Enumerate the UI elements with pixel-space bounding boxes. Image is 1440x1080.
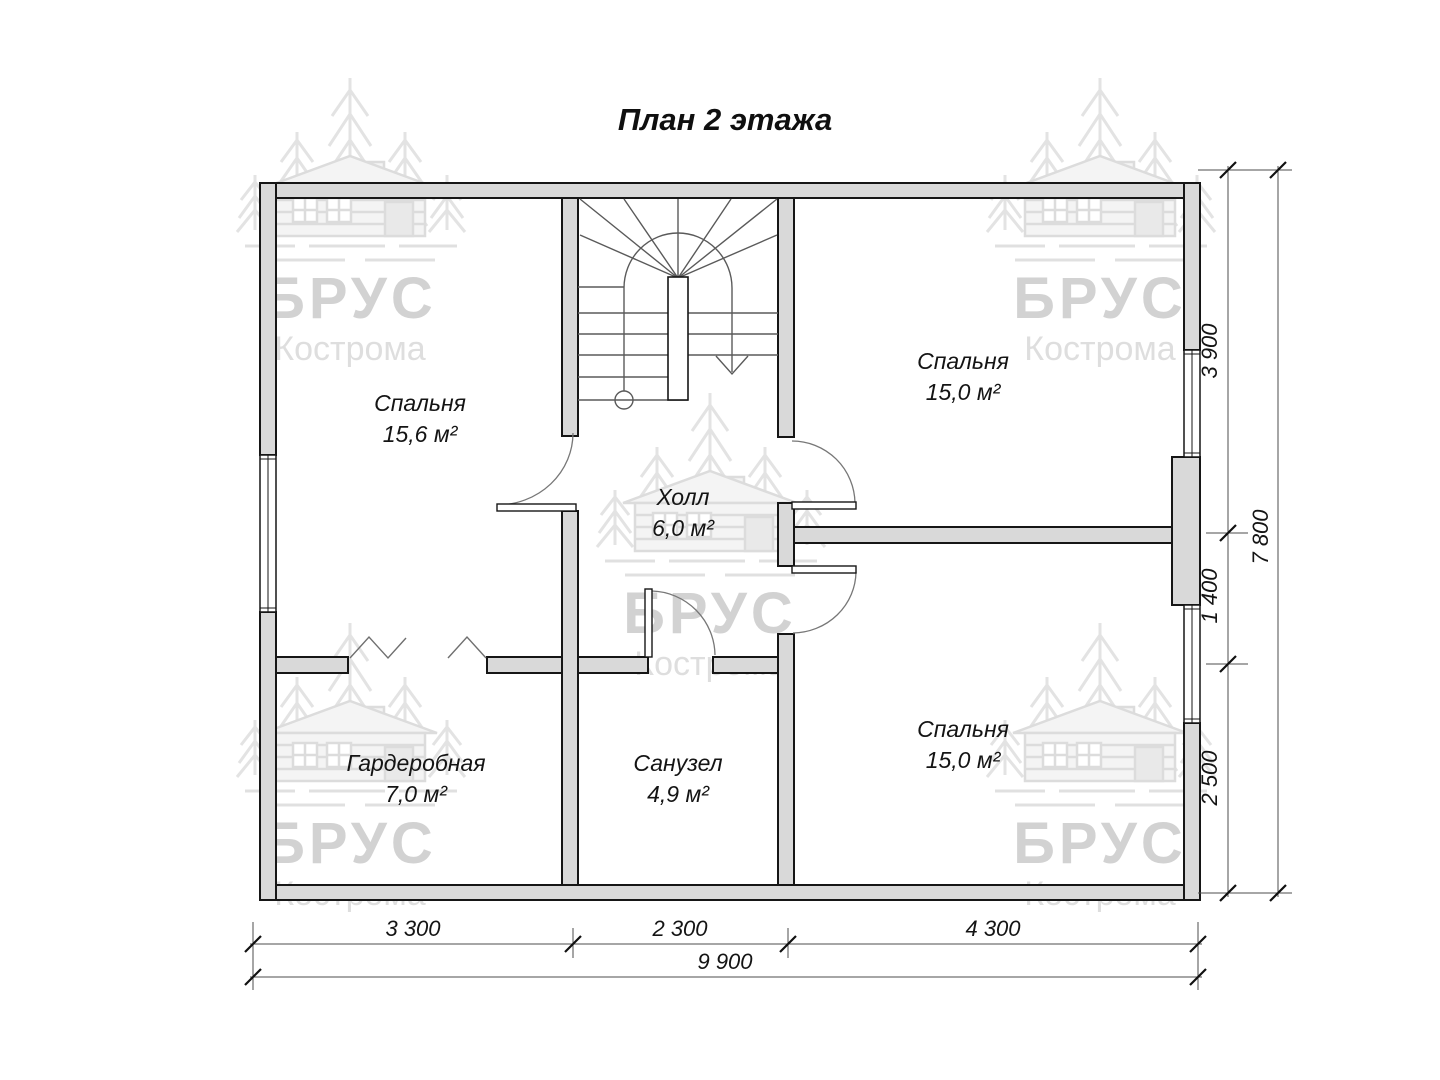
bedrooms-divider-wall — [794, 527, 1172, 543]
room-label-bedroom-bottom-right: Спальня 15,0 м² — [863, 714, 1063, 776]
door-leaf — [497, 504, 576, 511]
watermark — [987, 78, 1215, 368]
door-leaf — [792, 566, 856, 573]
dim-right-total-7800: 7 800 — [1248, 477, 1274, 597]
door-leaf — [645, 589, 652, 657]
opening-marks — [350, 637, 486, 658]
room-area: 4,9 м² — [578, 779, 778, 810]
dim-bottom-2300: 2 300 — [620, 916, 740, 942]
outer-wall-right-pier — [1172, 457, 1200, 605]
door-bedroom-bottom-right — [792, 566, 856, 633]
dim-right-3900: 3 900 — [1197, 291, 1223, 411]
dim-bottom-3300: 3 300 — [353, 916, 473, 942]
bathroom-top-wall-right — [713, 657, 778, 673]
room-name: Санузел — [578, 748, 778, 779]
dim-right-2500: 2 500 — [1197, 718, 1223, 838]
room-area: 15,0 м² — [863, 377, 1063, 408]
room-label-wardrobe: Гардеробная 7,0 м² — [291, 748, 541, 810]
room-label-hall: Холл 6,0 м² — [583, 482, 783, 544]
room-area: 6,0 м² — [583, 513, 783, 544]
staircase — [578, 199, 778, 409]
room-label-bedroom-left: Спальня 15,6 м² — [320, 388, 520, 450]
room-name: Спальня — [863, 346, 1063, 377]
dim-right-1400: 1 400 — [1197, 536, 1223, 656]
window-left — [260, 455, 276, 612]
wardrobe-top-wall-left — [276, 657, 348, 673]
interior-wall-right-vert-upper — [778, 198, 794, 437]
outer-wall-left-upper — [260, 183, 276, 455]
opening-zigzag-icon — [448, 637, 486, 658]
outer-wall-top — [260, 183, 1200, 198]
room-name: Гардеробная — [291, 748, 541, 779]
bathroom-top-wall-left — [578, 657, 648, 673]
room-name: Спальня — [863, 714, 1063, 745]
dim-bottom-total-9900: 9 900 — [665, 949, 785, 975]
interior-wall-left-vert-lower — [562, 511, 578, 885]
outer-wall-bottom — [260, 885, 1200, 900]
outer-wall-left-lower — [260, 612, 276, 900]
room-area: 15,6 м² — [320, 419, 520, 450]
interior-wall-left-vert-upper — [562, 198, 578, 436]
door-swing-arc — [792, 441, 855, 503]
room-area: 7,0 м² — [291, 779, 541, 810]
interior-wall-right-vert-lower — [778, 634, 794, 885]
room-name: Холл — [583, 482, 783, 513]
room-label-bedroom-top-right: Спальня 15,0 м² — [863, 346, 1063, 408]
dim-bottom-4300: 4 300 — [933, 916, 1053, 942]
room-label-bathroom: Санузел 4,9 м² — [578, 748, 778, 810]
room-area: 15,0 м² — [863, 745, 1063, 776]
door-leaf — [792, 502, 856, 509]
stair-center-wall — [668, 277, 688, 400]
floor-plan-page: БРУС Кострома — [0, 0, 1440, 1080]
room-name: Спальня — [320, 388, 520, 419]
door-swing-arc — [793, 572, 856, 633]
wardrobe-top-wall-right — [487, 657, 562, 673]
door-bedroom-top-right — [792, 441, 856, 509]
page-title: План 2 этажа — [520, 102, 930, 138]
stair-winder-lines — [580, 199, 777, 278]
